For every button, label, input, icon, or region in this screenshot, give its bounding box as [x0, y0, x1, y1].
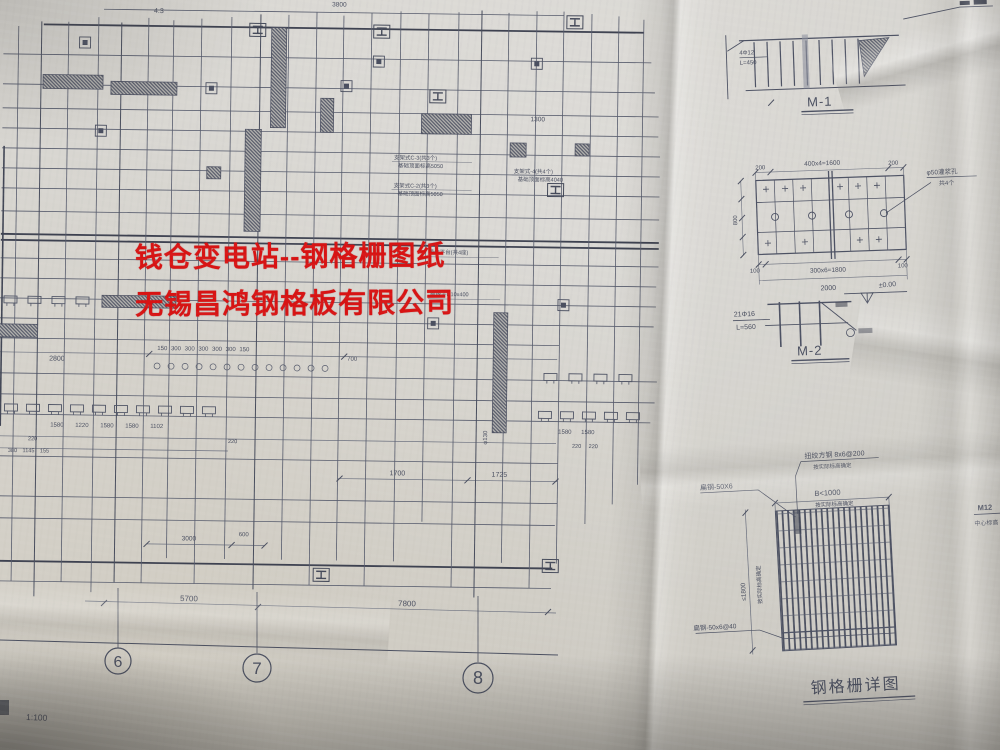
grid-bubble-6: 6 [114, 654, 123, 671]
dim-3000: 3000 [182, 535, 197, 542]
grating-note-top: 按实际标高确定 [813, 461, 852, 471]
scale-note: 1:100 [26, 712, 48, 723]
m2-title: M-2 [797, 343, 823, 359]
dim-300-row: 150 300 300 300 300 300 150 [157, 346, 250, 353]
watermark-line2: 无锡昌鸿钢格板有限公司 [135, 279, 454, 328]
dim-1580-row-right: 1580 1580 [558, 430, 595, 437]
m2plate-dim-200-right: 200 [888, 161, 899, 167]
detail-m1: 4Φ12 L=450 M-1 [725, 0, 997, 117]
dim-1725: 1725 [492, 472, 508, 479]
dim-700: 700 [347, 357, 358, 363]
dim-1580-row: 1580 1220 1580 1580 1102 [50, 423, 164, 431]
dim-220-b: 220 [228, 439, 237, 445]
dim-phi130: φ130 [483, 430, 489, 445]
detail-grating: 扭绞方钢 8x6@200 按实际标高确定 扁钢-50X6 B<1000 按实际标… [684, 446, 915, 710]
label-eq1-line2: 基础顶面标高5050 [398, 161, 443, 170]
detail-m2-plate: 200 400x4=1600 200 800 100 300x6=1800 10… [731, 155, 980, 295]
grid-axis-row: 6 7 8 5700 7800 1:100 [0, 588, 558, 723]
m2plate-grout-hole-count: 共4个 [939, 179, 955, 188]
grating-bearing-bar-label: 扁钢-50x6@40 [693, 621, 737, 632]
m2plate-dim-800: 800 [733, 215, 739, 226]
label-eq2-line2: 基础顶面标高5050 [397, 189, 442, 198]
m2plate-dim-200-left: 200 [755, 165, 766, 171]
detail-m2: ±0.00 21Φ16 L=560 M-2 [732, 281, 910, 366]
watermark: 钱仓变电站--钢格栅图纸 无锡昌鸿钢格板有限公司 [135, 232, 455, 328]
dim-1300: 1300 [530, 116, 545, 123]
dim-top-3800: 3800 [332, 1, 347, 8]
m2-length-label: L=560 [736, 324, 756, 332]
blueprint-photo: 3800 4.3 1300 2800 150 300 300 300 300 3… [0, 0, 1000, 750]
m2-bar-label: 21Φ16 [734, 311, 755, 319]
m2plate-dim-400x4: 400x4=1600 [804, 160, 841, 168]
m2plate-dim-300x6: 300x6=1800 [810, 266, 847, 274]
dim-2800: 2800 [49, 356, 65, 363]
label-eq2-line1: 支架式C-2(共3个) [394, 181, 437, 190]
grating-height-label: ≤1800 [740, 582, 748, 601]
grid-bubble-8: 8 [473, 668, 483, 688]
m2plate-dim-100-left: 100 [750, 268, 761, 274]
dim-380-row: 380 1145 155 [8, 448, 49, 455]
grating-note-height: 按实际标高确定 [754, 565, 764, 604]
dim-top-43: 4.3 [154, 8, 164, 15]
grating-title: 钢格栅详图 [810, 675, 901, 698]
m2plate-grout-hole-label: φ50灌浆孔 [926, 167, 958, 177]
m1-title: M-1 [807, 94, 833, 110]
label-eq3-line1: 支架式-4(共4个) [514, 167, 553, 176]
m1-length-label: L=450 [740, 60, 758, 67]
edge-bolt-label: M12 [977, 503, 992, 513]
edge-center-label: 中心标高 [974, 518, 998, 527]
edge-annotation: M12 中心标高 [973, 502, 1000, 527]
label-eq1-line1: 支架式C-3(共3个) [394, 153, 437, 162]
m2plate-dim-2000: 2000 [820, 285, 836, 293]
watermark-line1: 钱仓变电站--钢格栅图纸 [135, 232, 454, 281]
grating-flat-bar-label: 扁钢-50X6 [700, 481, 733, 492]
dim-220-c: 220 220 [572, 444, 598, 450]
dim-600: 600 [239, 532, 250, 538]
m2-level-mark: ±0.00 [878, 281, 896, 290]
label-eq3-line2: 基础顶面标高4040 [518, 175, 563, 184]
dim-220-a: 220 [28, 436, 37, 442]
grating-width-label: B<1000 [814, 488, 841, 498]
dim-span-5700: 5700 [180, 594, 199, 603]
m2plate-dim-100-right: 100 [898, 263, 909, 269]
grid-bubble-7: 7 [252, 659, 261, 678]
dim-1700: 1700 [390, 470, 406, 477]
drawing-canvas: 3800 4.3 1300 2800 150 300 300 300 300 3… [0, 0, 1000, 750]
m1-bar-label: 4Φ12 [739, 50, 755, 57]
dim-span-7800: 7800 [398, 599, 417, 608]
